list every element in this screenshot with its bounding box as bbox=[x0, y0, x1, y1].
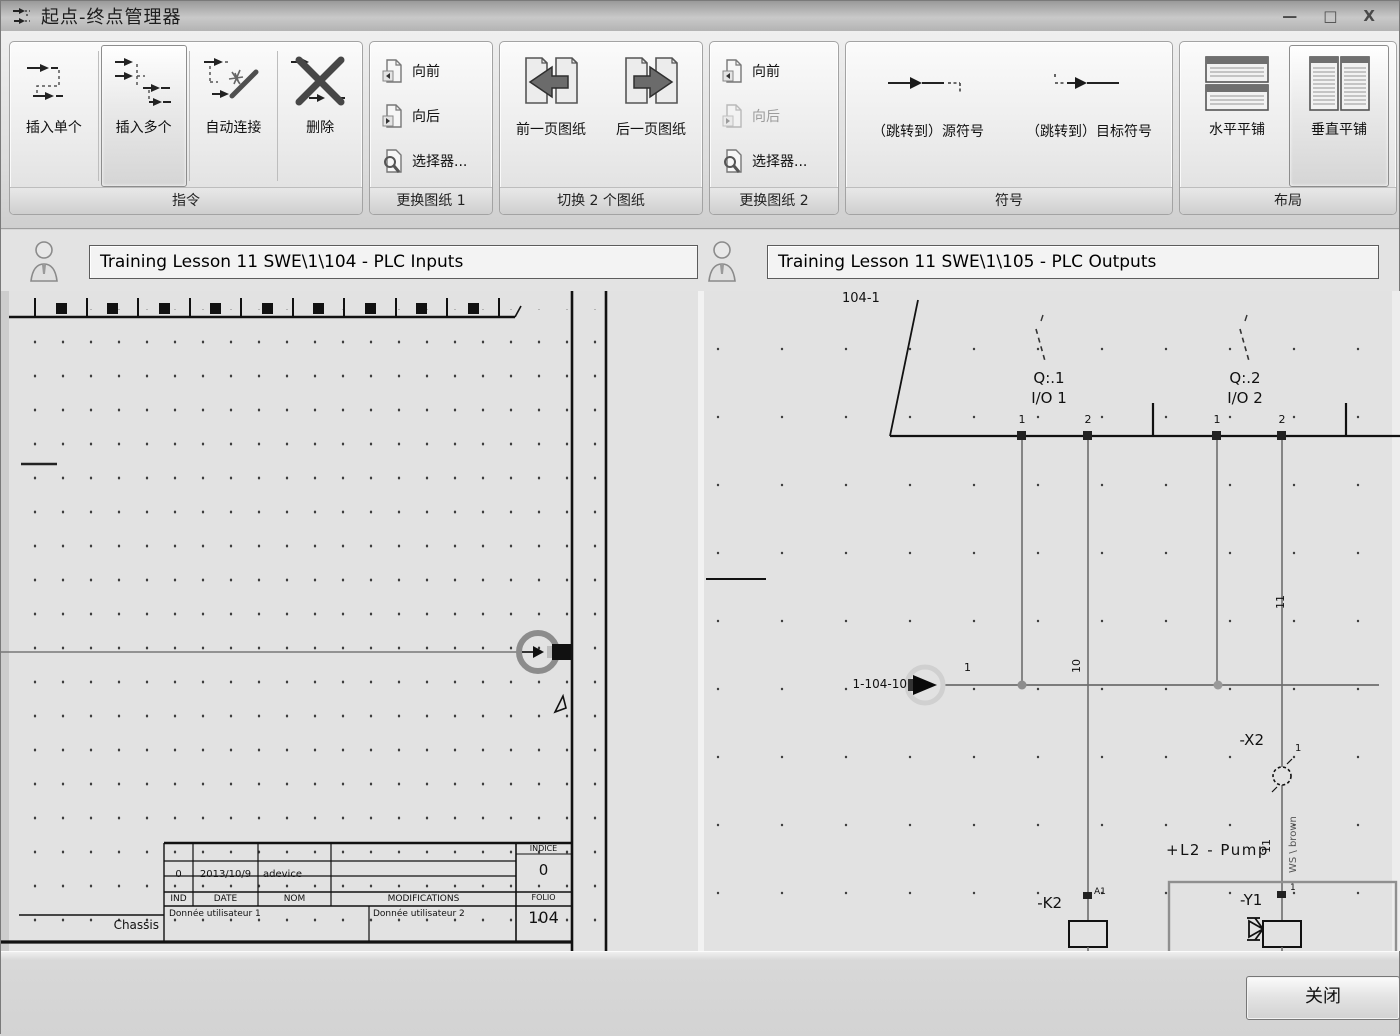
coil-k2-pin: A1 bbox=[1094, 887, 1106, 897]
close-window-button[interactable]: X bbox=[1363, 1, 1375, 31]
goto-source-symbol-label: （跳转到）源符号 bbox=[872, 124, 984, 140]
previous-sheet-icon bbox=[518, 54, 584, 114]
tile-horizontal-label: 水平平铺 bbox=[1209, 122, 1265, 138]
delete-icon bbox=[289, 54, 351, 112]
wire-number-11-top: 11 bbox=[1274, 595, 1287, 609]
app-icon bbox=[11, 5, 33, 27]
selector-icon bbox=[382, 148, 404, 174]
pin-label: 2 bbox=[1080, 413, 1096, 426]
pin-label: 1 bbox=[1014, 413, 1030, 426]
titleblock-modifications-header: MODIFICATIONS bbox=[331, 894, 516, 904]
tile-horizontal-icon bbox=[1203, 54, 1271, 114]
wire-number-label: 1 bbox=[964, 661, 971, 674]
titleblock-nom-header: NOM bbox=[258, 894, 331, 904]
schematic-left bbox=[1, 291, 698, 951]
goto-source-symbol-button[interactable]: （跳转到）源符号 bbox=[850, 45, 1006, 187]
forward-1-button[interactable]: 向前 bbox=[378, 55, 484, 87]
goto-target-symbol-label: （跳转到）目标符号 bbox=[1026, 124, 1152, 140]
group-label-switch-sheets: 切换 2 个图纸 bbox=[500, 187, 702, 214]
wire-source-arrow-symbol[interactable] bbox=[913, 675, 937, 695]
sheet-canvas-right[interactable]: 104-1 Q:.1 I/O 1 Q:.2 I/O 2 1 2 1 2 1-10… bbox=[704, 291, 1400, 951]
ribbon-group-commands: 插入单个 bbox=[9, 41, 363, 215]
ribbon-group-symbols: （跳转到）源符号 （跳转到）目标符号 符号 bbox=[845, 41, 1173, 215]
previous-sheet-button[interactable]: 前一页图纸 bbox=[504, 45, 598, 187]
insert-single-label: 插入单个 bbox=[26, 120, 82, 136]
auto-connect-button[interactable]: 自动连接 bbox=[192, 45, 276, 187]
insert-multiple-button[interactable]: 插入多个 bbox=[101, 45, 187, 187]
selector-2-label: 选择器... bbox=[752, 151, 807, 171]
page-backward-icon bbox=[382, 103, 404, 129]
sheet-area: 0 2013/10/9 adevice IND DATE NOM MODIFIC… bbox=[1, 291, 1399, 951]
titleblock-folio-label: FOLIO bbox=[516, 893, 571, 902]
titleblock-date-header: DATE bbox=[193, 894, 258, 904]
delete-label: 删除 bbox=[306, 120, 334, 136]
group-label-symbols: 符号 bbox=[846, 187, 1172, 214]
cursor-glyph bbox=[555, 696, 566, 712]
cable-spec-label: WS \ brown bbox=[1288, 816, 1299, 873]
user-icon-right bbox=[707, 240, 737, 282]
titleblock-indice-value: 0 bbox=[516, 861, 571, 879]
goto-target-symbol-icon bbox=[1045, 68, 1133, 98]
start-end-manager-window: 起点-终点管理器 — □ X bbox=[0, 0, 1400, 1034]
goto-source-symbol-icon bbox=[884, 68, 972, 98]
forward-2-button[interactable]: 向前 bbox=[718, 55, 830, 87]
auto-connect-label: 自动连接 bbox=[205, 120, 261, 136]
previous-sheet-label: 前一页图纸 bbox=[516, 122, 586, 138]
insert-multiple-icon bbox=[113, 54, 175, 112]
valve-y1-symbol[interactable] bbox=[1263, 921, 1301, 947]
maximize-button[interactable]: □ bbox=[1323, 1, 1337, 31]
terminal-x2-label: -X2 bbox=[1219, 731, 1264, 749]
ribbon-group-change-sheet-2: 向前 向后 bbox=[709, 41, 839, 215]
ribbon: 插入单个 bbox=[1, 31, 1399, 229]
backward-1-button[interactable]: 向后 bbox=[378, 100, 484, 132]
selector-1-label: 选择器... bbox=[412, 151, 467, 171]
titleblock-ind-value: 0 bbox=[164, 869, 193, 880]
minimize-button[interactable]: — bbox=[1282, 1, 1297, 31]
forward-1-label: 向前 bbox=[412, 61, 440, 81]
plc-io-1: I/O 1 bbox=[1019, 389, 1079, 407]
tile-vertical-button[interactable]: 垂直平铺 bbox=[1289, 45, 1389, 187]
backward-1-label: 向后 bbox=[412, 106, 440, 126]
terminal-x2-symbol[interactable] bbox=[1273, 767, 1291, 785]
user-icon-left bbox=[29, 240, 59, 282]
auto-connect-icon bbox=[202, 54, 264, 112]
insert-single-icon bbox=[23, 54, 85, 112]
sheet-header-row: Training Lesson 11 SWE\1\104 - PLC Input… bbox=[1, 230, 1399, 291]
close-button[interactable]: 关闭 bbox=[1246, 976, 1400, 1020]
insert-single-button[interactable]: 插入单个 bbox=[12, 45, 96, 187]
titleblock-chassis: Chassis bbox=[59, 918, 159, 932]
group-label-change-sheet-1: 更换图纸 1 bbox=[370, 187, 492, 214]
title-bar: 起点-终点管理器 — □ X bbox=[1, 1, 1399, 31]
group-label-layout: 布局 bbox=[1180, 187, 1396, 214]
sheet-title-left[interactable]: Training Lesson 11 SWE\1\104 - PLC Input… bbox=[89, 245, 698, 279]
page-backward-icon bbox=[722, 103, 744, 129]
tile-horizontal-button[interactable]: 水平平铺 bbox=[1187, 45, 1287, 187]
coil-k2-symbol[interactable] bbox=[1069, 921, 1107, 947]
plc-address-q1: Q:.1 bbox=[1019, 369, 1079, 387]
sheet-ref-label: 104-1 bbox=[842, 291, 880, 306]
valve-y1-label: -Y1 bbox=[1240, 891, 1262, 909]
insert-multiple-label: 插入多个 bbox=[116, 120, 172, 136]
pin-label: 1 bbox=[1209, 413, 1225, 426]
goto-target-symbol-button[interactable]: （跳转到）目标符号 bbox=[1010, 45, 1168, 187]
ribbon-group-change-sheet-1: 向前 向后 bbox=[369, 41, 493, 215]
tile-vertical-icon bbox=[1305, 54, 1373, 114]
titleblock-ind-header: IND bbox=[164, 894, 193, 904]
page-forward-icon bbox=[722, 58, 744, 84]
forward-2-label: 向前 bbox=[752, 61, 780, 81]
window-title: 起点-终点管理器 bbox=[41, 3, 182, 29]
plc-address-q2: Q:.2 bbox=[1215, 369, 1275, 387]
titleblock-date-value: 2013/10/9 bbox=[193, 869, 258, 880]
next-sheet-label: 后一页图纸 bbox=[616, 122, 686, 138]
group-label-change-sheet-2: 更换图纸 2 bbox=[710, 187, 838, 214]
separator bbox=[98, 51, 99, 181]
ribbon-group-switch-sheets: 前一页图纸 后一页图纸 切换 2 个图纸 bbox=[499, 41, 703, 215]
separator bbox=[189, 51, 190, 181]
valve-y1-pin: 1 bbox=[1290, 883, 1296, 893]
wire-number-10: 10 bbox=[1070, 659, 1083, 673]
tile-vertical-label: 垂直平铺 bbox=[1311, 122, 1367, 138]
ribbon-group-layout: 水平平铺 垂直平铺 布局 bbox=[1179, 41, 1397, 215]
coil-k2-label: -K2 bbox=[1022, 894, 1062, 912]
group-label-commands: 指令 bbox=[10, 187, 362, 214]
titleblock-folio-value: 104 bbox=[516, 908, 571, 927]
next-sheet-icon bbox=[618, 54, 684, 114]
terminal-x2-pin: 1 bbox=[1295, 743, 1301, 754]
plc-io-2: I/O 2 bbox=[1215, 389, 1275, 407]
wire-reference-label: 1-104-10 bbox=[832, 677, 907, 691]
sheet-canvas-left[interactable]: 0 2013/10/9 adevice IND DATE NOM MODIFIC… bbox=[1, 291, 698, 951]
selector-icon bbox=[722, 148, 744, 174]
wire-arrow-symbol[interactable] bbox=[533, 646, 544, 658]
selector-2-button[interactable]: 选择器... bbox=[718, 145, 830, 177]
backward-2-label: 向后 bbox=[752, 106, 780, 126]
pin-label: 2 bbox=[1274, 413, 1290, 426]
titleblock-user2: Donnée utilisateur 2 bbox=[373, 909, 465, 919]
delete-button[interactable]: 删除 bbox=[280, 45, 360, 187]
separator bbox=[277, 51, 278, 181]
selector-1-button[interactable]: 选择器... bbox=[378, 145, 484, 177]
sheet-title-right[interactable]: Training Lesson 11 SWE\1\105 - PLC Outpu… bbox=[767, 245, 1379, 279]
backward-2-button[interactable]: 向后 bbox=[718, 100, 830, 132]
titleblock-user1: Donnée utilisateur 1 bbox=[169, 909, 261, 919]
page-forward-icon bbox=[382, 58, 404, 84]
titleblock-nom-value: adevice bbox=[263, 869, 302, 880]
dialog-footer: 关闭 bbox=[1, 951, 1399, 1036]
location-l2-pump-label: +L2 - Pump bbox=[1166, 841, 1269, 859]
titleblock-indice-label: INDICE bbox=[516, 844, 571, 853]
next-sheet-button[interactable]: 后一页图纸 bbox=[604, 45, 698, 187]
